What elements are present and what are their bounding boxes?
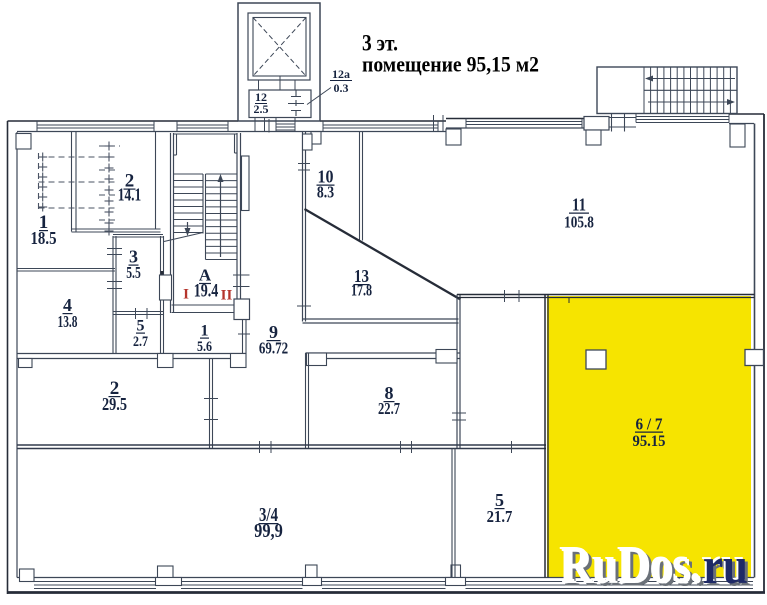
svg-text:105.8: 105.8 — [564, 213, 594, 232]
svg-text:помещение 95,15 м2: помещение 95,15 м2 — [362, 52, 539, 77]
svg-text:5.6: 5.6 — [197, 339, 212, 355]
svg-text:14.1: 14.1 — [118, 185, 142, 205]
svg-text:19.4: 19.4 — [194, 281, 219, 302]
svg-text:I: I — [183, 287, 189, 303]
svg-text:0.3: 0.3 — [334, 81, 349, 95]
svg-text:12a: 12a — [332, 67, 350, 81]
svg-text:RuDos.ru: RuDos.ru — [561, 538, 748, 595]
svg-text:29.5: 29.5 — [102, 394, 127, 414]
svg-text:2.7: 2.7 — [133, 334, 148, 350]
svg-text:1: 1 — [201, 323, 209, 340]
svg-text:11: 11 — [572, 195, 586, 215]
svg-text:21.7: 21.7 — [487, 507, 513, 526]
svg-text:17.8: 17.8 — [351, 281, 372, 300]
svg-text:2.5: 2.5 — [254, 102, 269, 116]
svg-text:5.5: 5.5 — [126, 263, 141, 282]
svg-text:6 / 7: 6 / 7 — [636, 415, 663, 434]
svg-text:95.15: 95.15 — [633, 433, 666, 450]
svg-text:22.7: 22.7 — [378, 399, 400, 418]
svg-text:99,9: 99,9 — [254, 520, 283, 542]
svg-text:5: 5 — [137, 318, 145, 335]
svg-text:69.72: 69.72 — [259, 339, 288, 358]
svg-text:II: II — [221, 288, 233, 304]
svg-text:18.5: 18.5 — [31, 228, 57, 248]
svg-text:13.8: 13.8 — [58, 312, 78, 331]
svg-text:8.3: 8.3 — [317, 183, 334, 202]
